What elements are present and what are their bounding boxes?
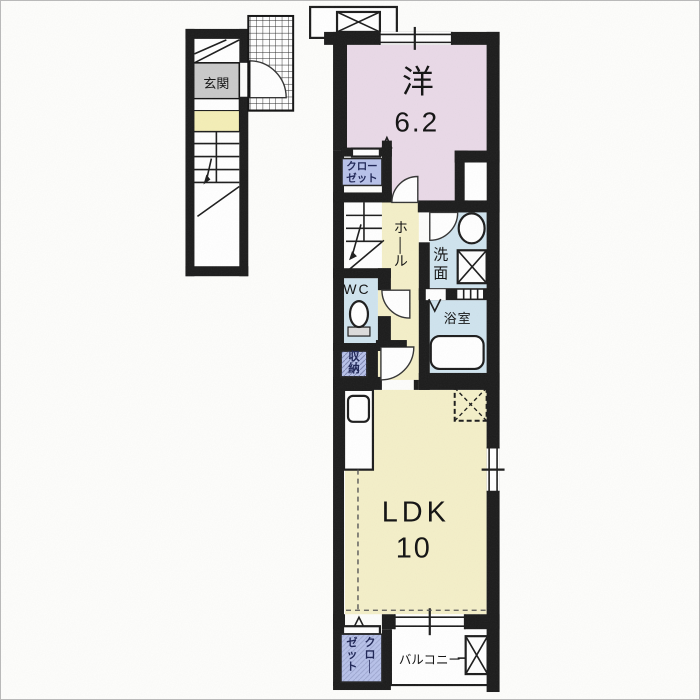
- floor-plan-canvas: 玄関: [0, 0, 700, 700]
- paper-noise-overlay: [1, 1, 699, 699]
- floor-plan-svg: 玄関: [1, 1, 699, 699]
